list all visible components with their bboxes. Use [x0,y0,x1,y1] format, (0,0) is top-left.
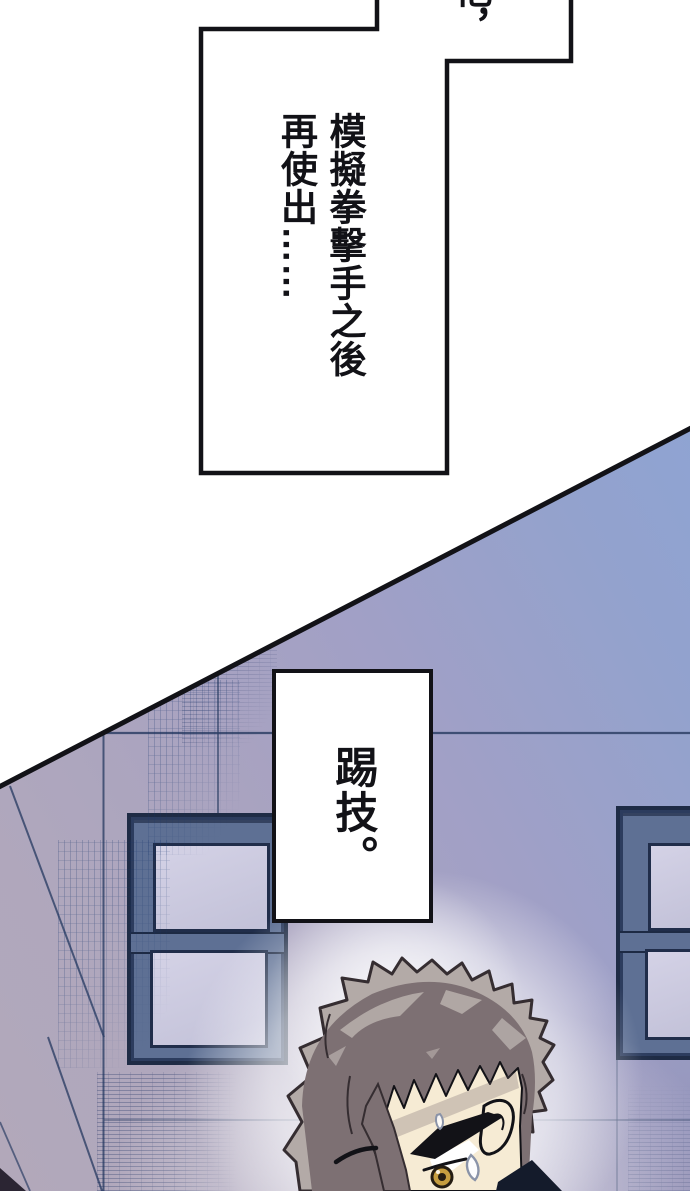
eye-pupil [438,1173,446,1181]
kick-bubble-text: 踢技。 [329,673,375,919]
narration-line-2: 再使出 [276,112,317,226]
top-bubble-fragment: 他， [450,0,496,42]
narration-text: 模擬拳擊手之後再使出…… [271,112,368,457]
narration-ellipsis: …… [276,226,317,300]
narration-line-1: 模擬拳擊手之後 [324,112,365,378]
character-head [276,956,566,1191]
eye-highlight [436,1170,440,1174]
sweat-drop-small [436,1114,443,1129]
top-bubble-fragment-text: 他， [450,0,489,42]
manga-page: 他， 模擬拳擊手之後再使出…… 踢技。 [0,0,690,1191]
kick-bubble: 踢技。 [272,669,433,923]
